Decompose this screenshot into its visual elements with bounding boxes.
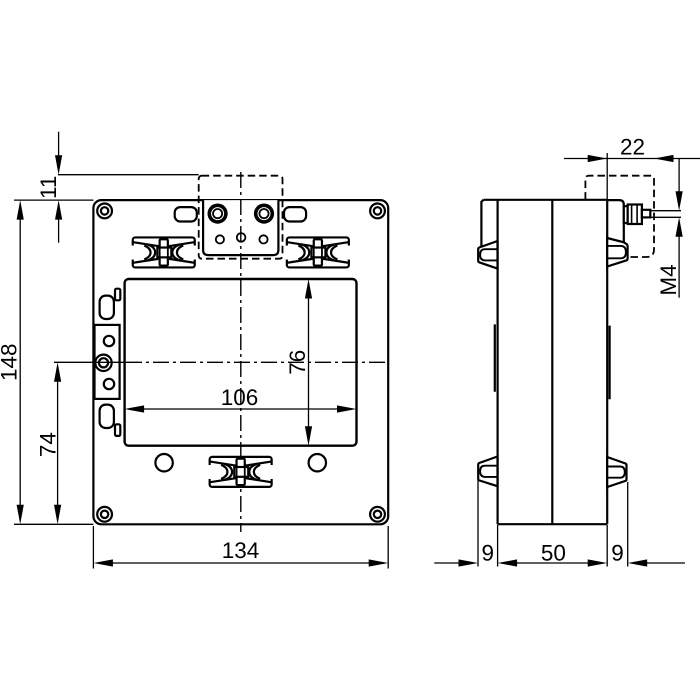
svg-text:11: 11 bbox=[36, 176, 61, 199]
svg-text:148: 148 bbox=[0, 343, 22, 381]
svg-text:50: 50 bbox=[541, 540, 566, 565]
svg-text:M4: M4 bbox=[656, 264, 681, 295]
svg-text:9: 9 bbox=[482, 540, 495, 565]
svg-text:134: 134 bbox=[222, 538, 260, 563]
svg-text:76: 76 bbox=[285, 350, 310, 375]
svg-text:9: 9 bbox=[611, 540, 624, 565]
svg-text:74: 74 bbox=[35, 432, 60, 457]
svg-text:22: 22 bbox=[620, 134, 645, 159]
svg-text:106: 106 bbox=[221, 385, 259, 410]
